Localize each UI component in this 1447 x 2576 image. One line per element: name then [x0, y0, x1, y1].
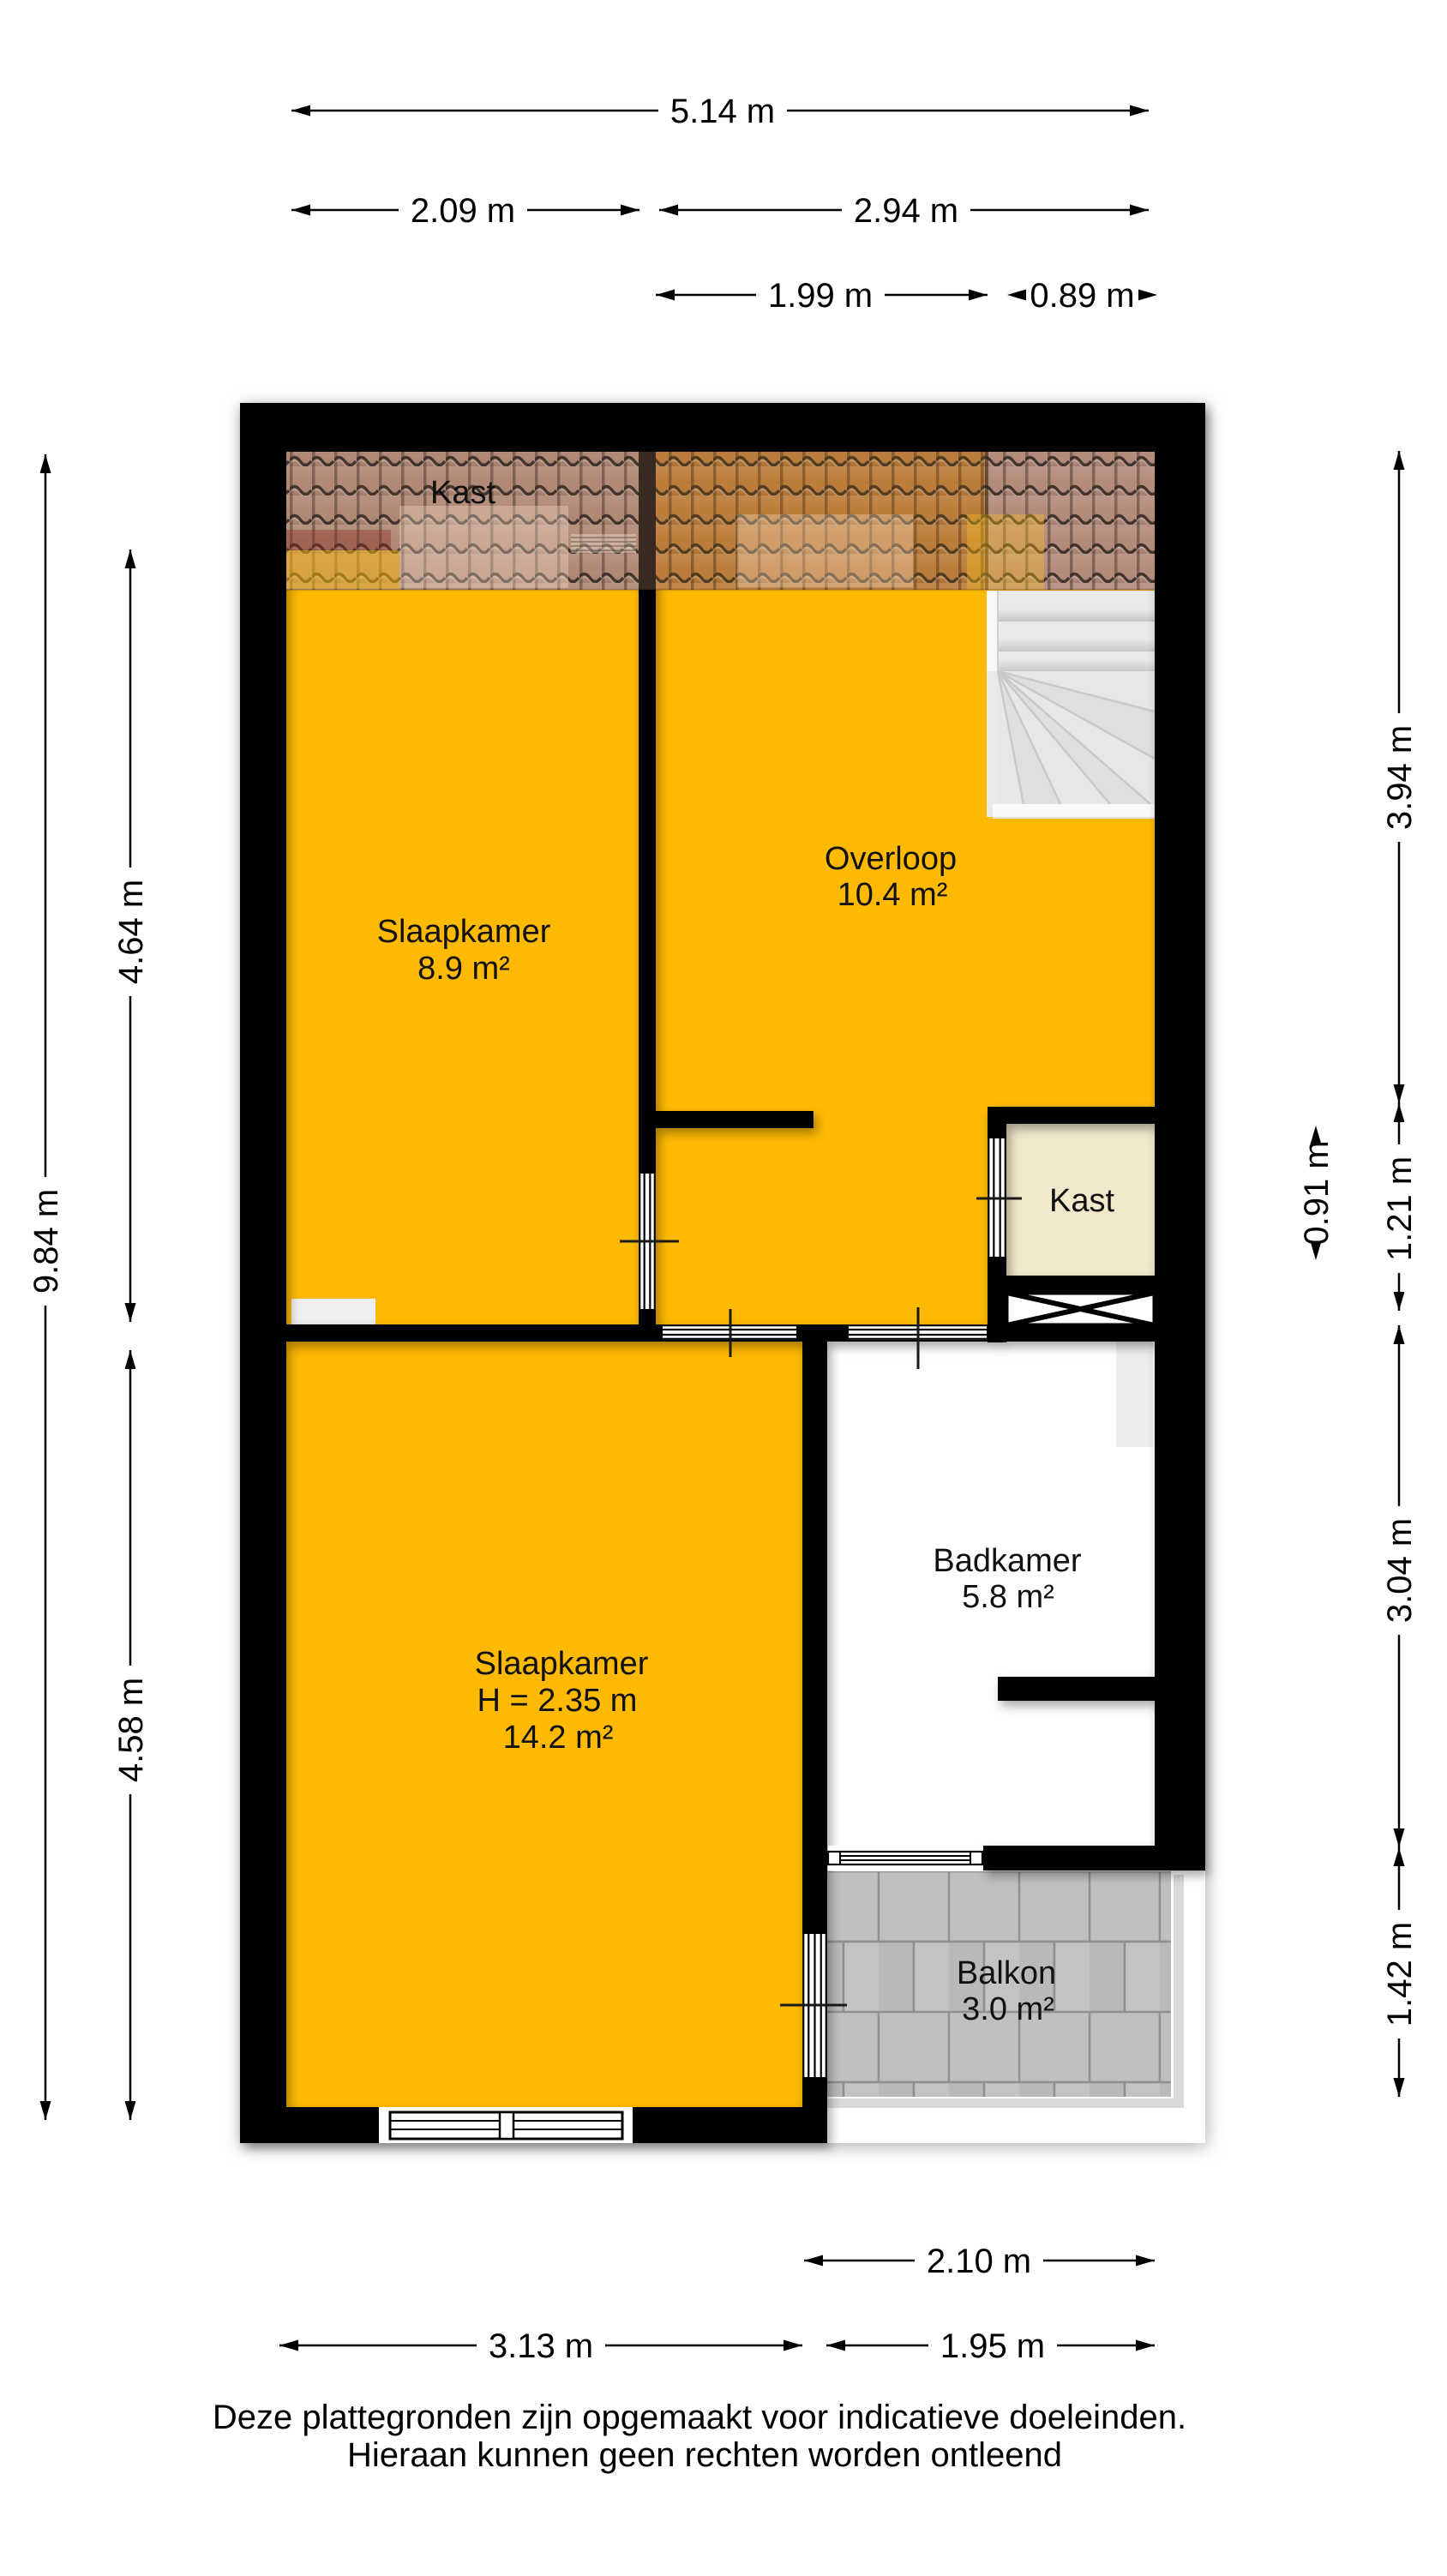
svg-text:0.89 m: 0.89 m	[1030, 277, 1134, 315]
svg-text:1.99 m: 1.99 m	[768, 277, 873, 315]
svg-text:2.94 m: 2.94 m	[854, 192, 958, 230]
svg-text:Hieraan kunnen geen rechten wo: Hieraan kunnen geen rechten worden ontle…	[347, 2436, 1062, 2474]
svg-text:2.09 m: 2.09 m	[411, 192, 515, 230]
svg-text:1.95 m: 1.95 m	[940, 2327, 1045, 2365]
svg-text:9.84 m: 9.84 m	[27, 1189, 65, 1294]
svg-text:3.04 m: 3.04 m	[1381, 1518, 1419, 1623]
svg-text:3.94 m: 3.94 m	[1381, 725, 1419, 830]
svg-text:10.4 m²: 10.4 m²	[838, 877, 948, 913]
svg-text:4.64 m: 4.64 m	[112, 880, 150, 984]
svg-text:14.2 m²: 14.2 m²	[503, 1720, 614, 1756]
svg-text:3.0 m²: 3.0 m²	[962, 1991, 1054, 2027]
svg-text:2.10 m: 2.10 m	[927, 2243, 1031, 2280]
svg-text:5.8 m²: 5.8 m²	[962, 1579, 1054, 1615]
svg-text:H = 2.35 m: H = 2.35 m	[477, 1683, 638, 1719]
svg-text:1.42 m: 1.42 m	[1381, 1922, 1419, 2027]
svg-text:4.58 m: 4.58 m	[112, 1678, 150, 1782]
svg-text:8.9 m²: 8.9 m²	[417, 951, 510, 987]
svg-text:Badkamer: Badkamer	[933, 1543, 1082, 1579]
svg-text:Slaapkamer: Slaapkamer	[377, 914, 551, 950]
svg-text:0.91 m: 0.91 m	[1298, 1140, 1336, 1245]
svg-text:5.14 m: 5.14 m	[670, 93, 775, 130]
svg-text:Deze plattegronden zijn opgema: Deze plattegronden zijn opgemaakt voor i…	[213, 2399, 1186, 2436]
svg-text:3.13 m: 3.13 m	[489, 2327, 593, 2365]
svg-text:Balkon: Balkon	[957, 1955, 1056, 1991]
svg-text:Overloop: Overloop	[825, 841, 957, 877]
svg-text:Kast: Kast	[1049, 1183, 1114, 1219]
svg-text:Kast: Kast	[430, 475, 495, 511]
svg-text:Slaapkamer: Slaapkamer	[475, 1646, 649, 1682]
svg-text:1.21 m: 1.21 m	[1381, 1156, 1419, 1261]
